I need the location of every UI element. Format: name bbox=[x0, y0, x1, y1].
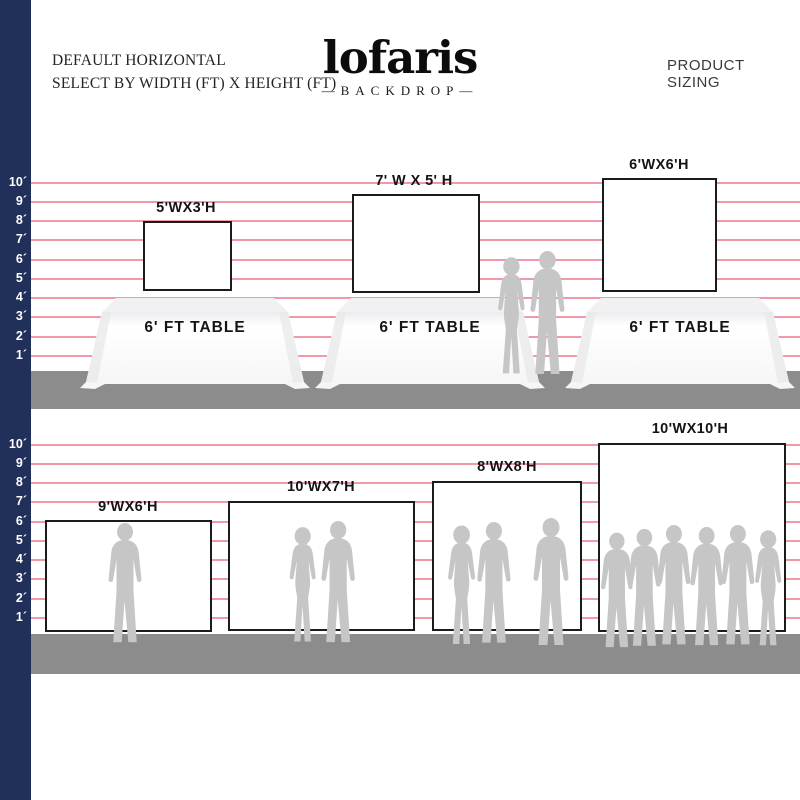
ruler-label: 8´ bbox=[0, 212, 27, 228]
person-man bbox=[690, 527, 723, 645]
person-woman bbox=[448, 525, 475, 644]
ruler-label: 5´ bbox=[0, 532, 27, 548]
ruler-label: 6´ bbox=[0, 251, 27, 267]
person-woman bbox=[498, 257, 524, 373]
backdrop-size-label: 6'WX6'H bbox=[601, 157, 717, 173]
brand-logo-tagline: —BACKDROP— bbox=[290, 83, 510, 99]
backdrop-size-label: 7' W X 5' H bbox=[356, 173, 472, 189]
person-man bbox=[109, 523, 142, 642]
ruler-label: 2´ bbox=[0, 590, 27, 606]
ruler-label: 9´ bbox=[0, 455, 27, 471]
group-of-six-silhouette bbox=[597, 521, 787, 655]
person-man bbox=[628, 529, 660, 646]
person-man bbox=[477, 522, 510, 643]
backdrop-size-label: 8'WX8'H bbox=[447, 459, 567, 475]
man-silhouette bbox=[102, 522, 148, 646]
backdrop-5x3 bbox=[143, 221, 232, 291]
brand-logo-word: lofaris bbox=[290, 34, 510, 82]
page-title: PRODUCT SIZING bbox=[667, 57, 800, 91]
table-label: 6' FT TABLE bbox=[80, 319, 310, 337]
table-label: 6' FT TABLE bbox=[315, 319, 545, 337]
person-woman bbox=[755, 530, 781, 645]
ruler-label: 6´ bbox=[0, 513, 27, 529]
person-woman bbox=[290, 527, 316, 641]
person-man bbox=[721, 525, 754, 644]
backdrop-size-label: 10'WX10'H bbox=[628, 421, 752, 437]
ruler-label: 3´ bbox=[0, 308, 27, 324]
group-of-three-silhouette bbox=[442, 517, 574, 649]
person-man bbox=[657, 525, 690, 644]
backdrop-size-label: 9'WX6'H bbox=[68, 499, 188, 515]
backdrop-size-label: 5'WX3'H bbox=[128, 200, 244, 216]
couple-silhouette bbox=[280, 520, 362, 644]
couple-silhouette bbox=[490, 250, 570, 376]
person-man bbox=[533, 518, 568, 645]
ruler-label: 7´ bbox=[0, 493, 27, 509]
ruler-label: 1´ bbox=[0, 609, 27, 625]
backdrop-7x5 bbox=[352, 194, 480, 293]
ruler-label: 1´ bbox=[0, 347, 27, 363]
ruler-label: 9´ bbox=[0, 193, 27, 209]
backdrop-6x6 bbox=[602, 178, 717, 292]
backdrop-size-label: 10'WX7'H bbox=[261, 479, 381, 495]
table-label: 6' FT TABLE bbox=[565, 319, 795, 337]
ruler-bar bbox=[0, 0, 31, 800]
ruler-label: 8´ bbox=[0, 474, 27, 490]
ruler-label: 4´ bbox=[0, 289, 27, 305]
table-illustration bbox=[565, 298, 795, 390]
brand-logo: lofaris —BACKDROP— bbox=[290, 34, 510, 99]
ruler-label: 3´ bbox=[0, 570, 27, 586]
ruler-label: 2´ bbox=[0, 328, 27, 344]
ruler-label: 4´ bbox=[0, 551, 27, 567]
person-man bbox=[530, 251, 564, 374]
ruler-label: 7´ bbox=[0, 231, 27, 247]
table-top bbox=[102, 298, 288, 312]
person-man bbox=[601, 533, 633, 647]
product-sizing-chart: DEFAULT HORIZONTAL SELECT BY WIDTH (FT) … bbox=[0, 0, 800, 800]
table-illustration bbox=[80, 298, 310, 390]
ruler-label: 10´ bbox=[0, 174, 27, 190]
person-man bbox=[321, 521, 354, 642]
ruler-label: 10´ bbox=[0, 436, 27, 452]
ruler-label: 5´ bbox=[0, 270, 27, 286]
